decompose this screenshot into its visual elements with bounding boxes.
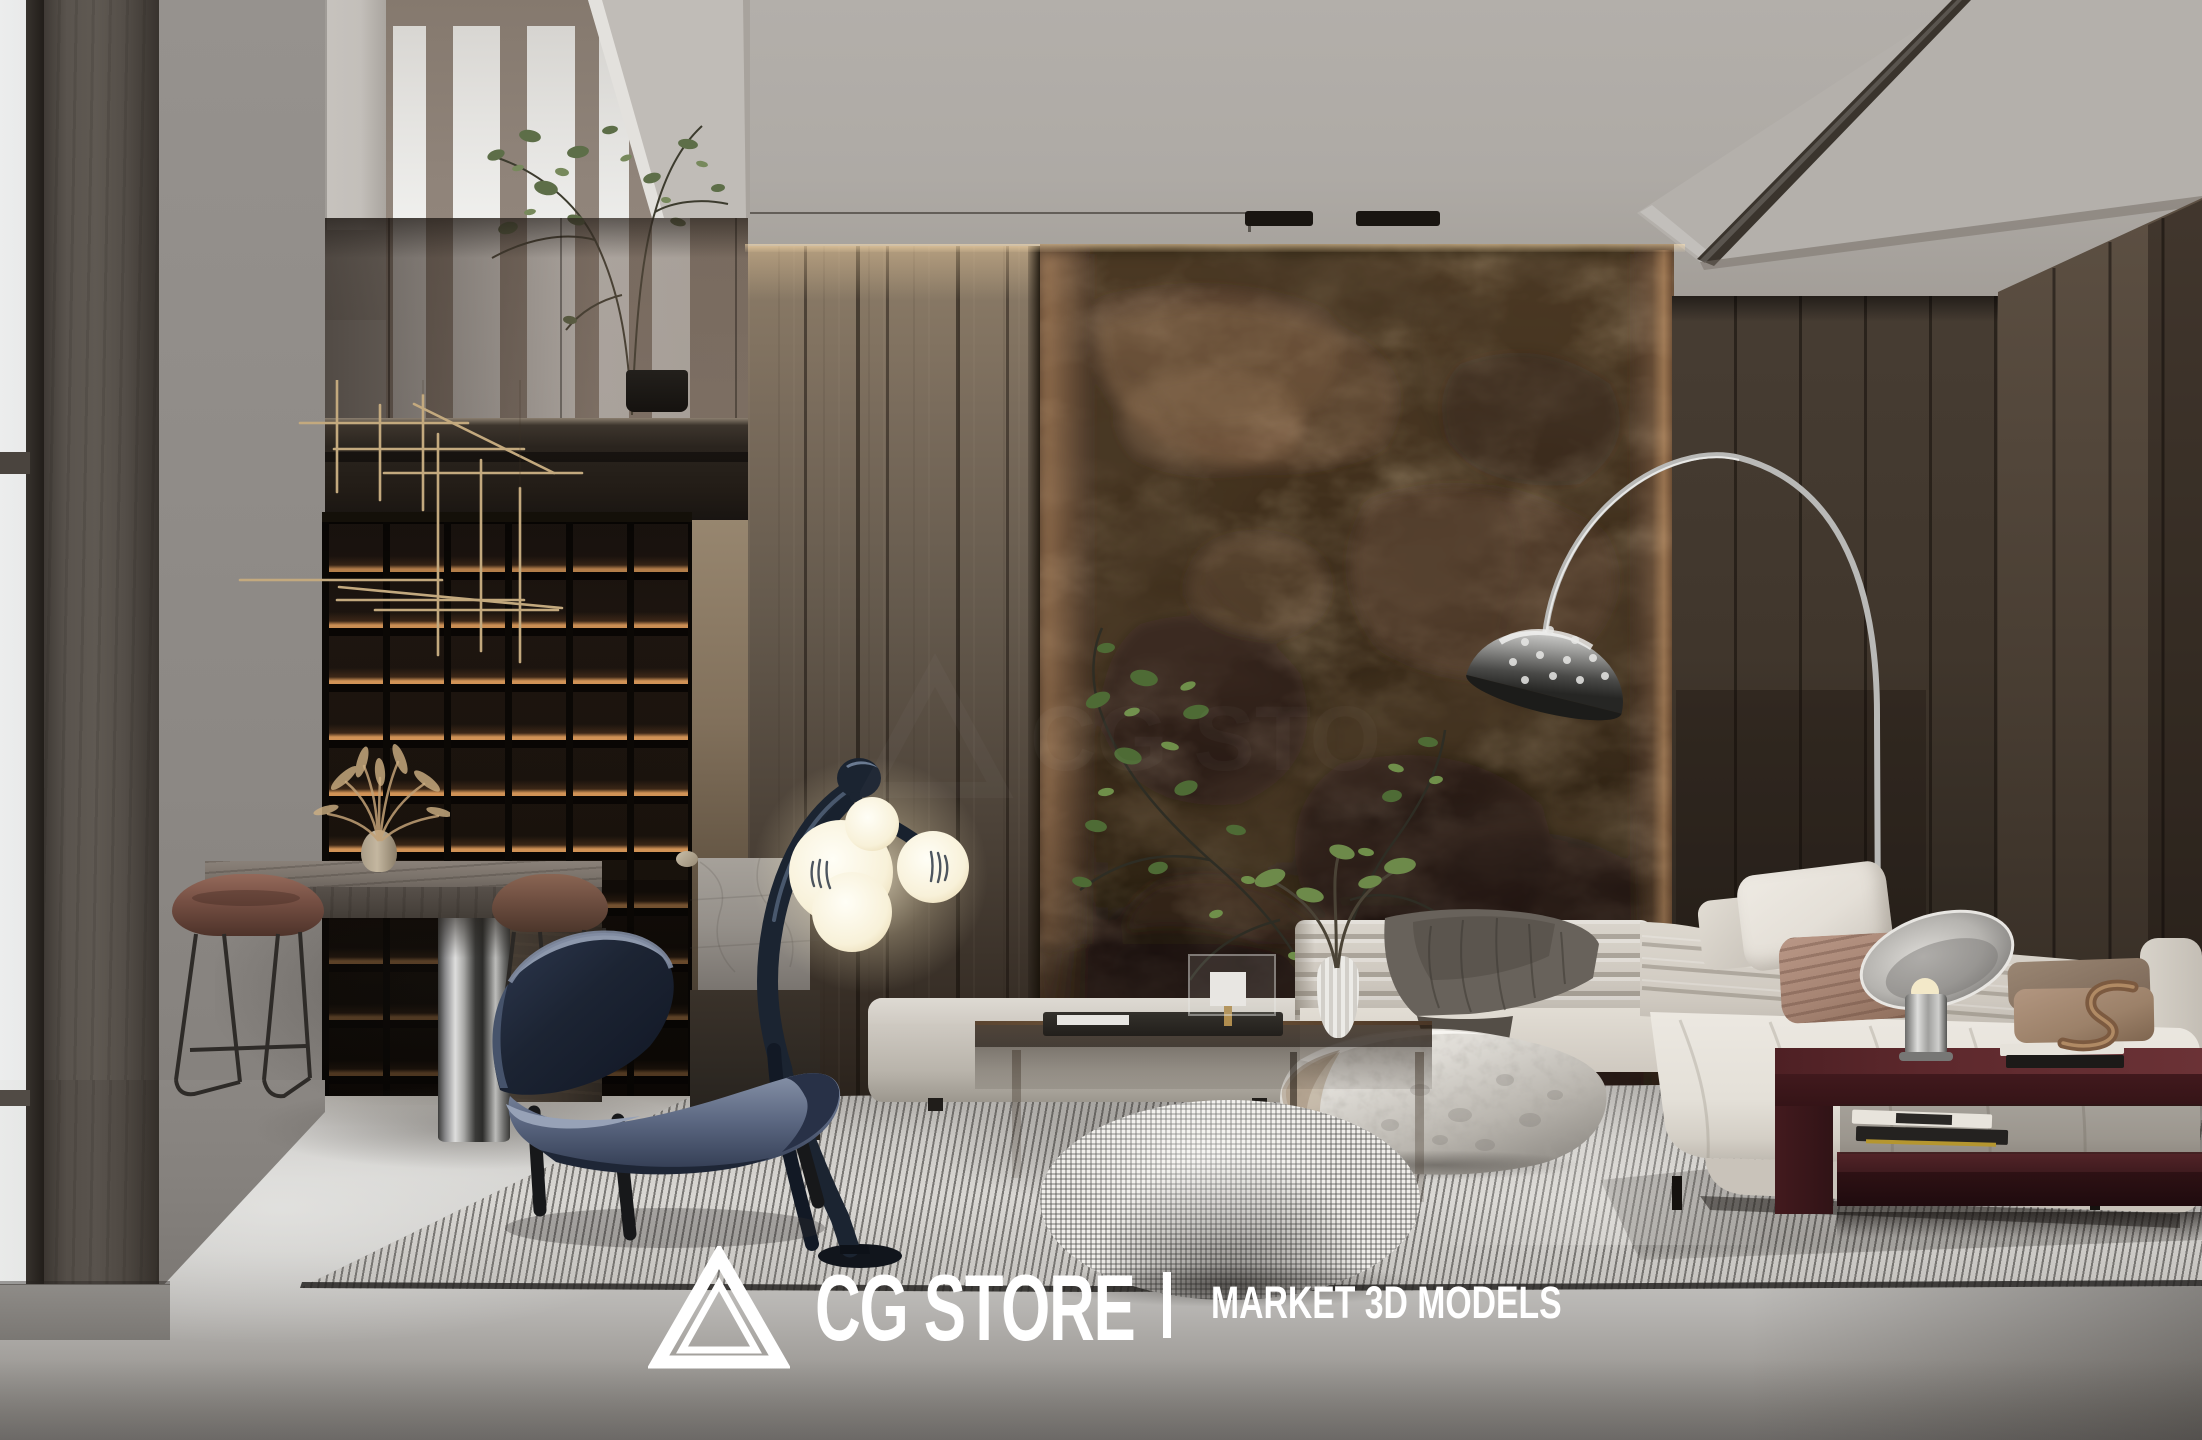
svg-text:CG STORE: CG STORE [1030,688,1380,790]
